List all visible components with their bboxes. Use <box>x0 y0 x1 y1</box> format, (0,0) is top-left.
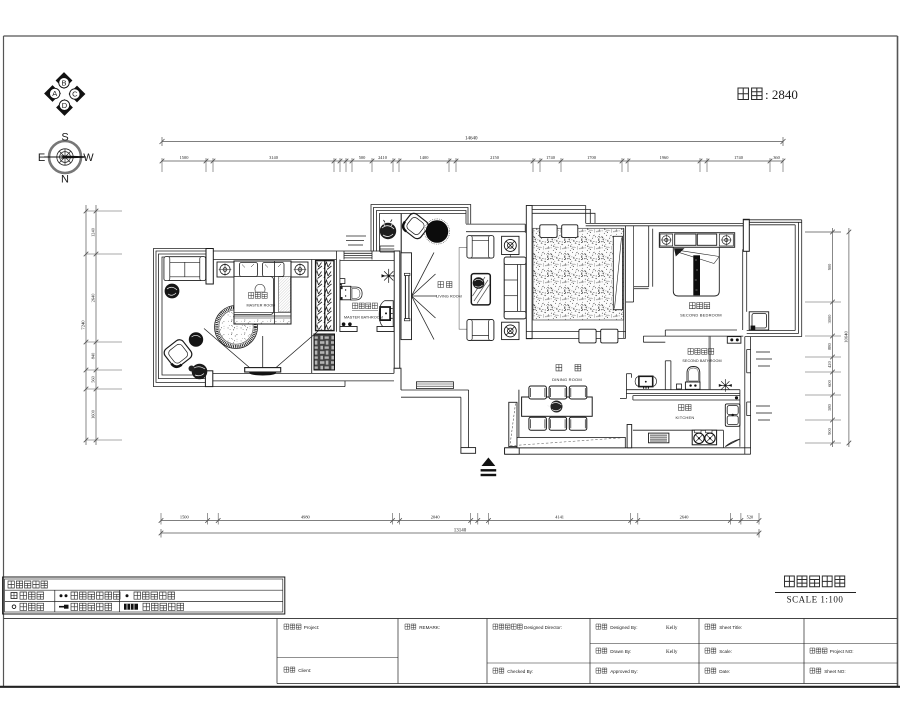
svg-text:1740: 1740 <box>734 155 744 160</box>
svg-text:4980: 4980 <box>301 514 311 519</box>
svg-text:560: 560 <box>91 375 96 382</box>
svg-text:1240: 1240 <box>91 227 96 237</box>
svg-text:3000: 3000 <box>827 314 832 324</box>
svg-text:900: 900 <box>827 263 832 270</box>
svg-text:Checked By:: Checked By: <box>507 669 533 674</box>
svg-text:SECOND BEDROOM: SECOND BEDROOM <box>680 313 722 318</box>
svg-text:1500: 1500 <box>180 155 190 160</box>
svg-text:B: B <box>61 78 66 87</box>
svg-text:2410: 2410 <box>378 155 388 160</box>
svg-text:360: 360 <box>773 155 780 160</box>
svg-text:A: A <box>52 89 57 98</box>
svg-text:Kelly: Kelly <box>666 625 678 631</box>
svg-text:SCALE 1:100: SCALE 1:100 <box>787 595 844 605</box>
svg-text:2040: 2040 <box>431 514 441 519</box>
svg-text:S: S <box>61 132 68 144</box>
svg-text:REMARK:: REMARK: <box>419 625 440 630</box>
svg-text:2150: 2150 <box>490 155 500 160</box>
svg-text:880: 880 <box>827 342 832 349</box>
svg-text:13140: 13140 <box>454 529 467 534</box>
svg-text:W: W <box>83 152 94 164</box>
svg-text:Date:: Date: <box>719 669 730 674</box>
svg-text:1700: 1700 <box>587 155 597 160</box>
svg-text:10640: 10640 <box>843 331 848 343</box>
svg-text:520: 520 <box>747 514 754 519</box>
svg-text:14640: 14640 <box>465 137 478 142</box>
svg-text:Designed Director:: Designed Director: <box>524 625 562 630</box>
svg-text:DINING ROOM: DINING ROOM <box>552 377 582 382</box>
svg-text:Designed By:: Designed By: <box>610 625 637 630</box>
svg-text:420: 420 <box>827 360 832 367</box>
svg-text:2640: 2640 <box>680 514 690 519</box>
svg-text:7240: 7240 <box>81 320 86 330</box>
svg-text:1500: 1500 <box>180 514 190 519</box>
svg-text:MASTER ROOM: MASTER ROOM <box>247 304 276 308</box>
svg-text:MASTER BATHROOM: MASTER BATHROOM <box>344 316 383 320</box>
svg-text:Drawn By:: Drawn By: <box>610 649 631 654</box>
svg-text:580: 580 <box>827 403 832 410</box>
svg-text:D: D <box>62 101 68 110</box>
svg-text:Approved By:: Approved By: <box>610 669 638 674</box>
svg-text:Project NO:: Project NO: <box>830 649 854 654</box>
svg-text:SECOND BATHROOM: SECOND BATHROOM <box>682 359 721 363</box>
svg-text:2640: 2640 <box>91 293 96 303</box>
svg-text:3140: 3140 <box>269 155 279 160</box>
svg-text:900: 900 <box>827 427 832 434</box>
svg-text:Scale:: Scale: <box>719 649 732 654</box>
svg-text:1740: 1740 <box>546 155 556 160</box>
svg-text:1600: 1600 <box>91 409 96 419</box>
svg-text:: 2840: : 2840 <box>765 87 798 102</box>
svg-text:Kelly: Kelly <box>666 649 678 655</box>
svg-text:Sheet NO:: Sheet NO: <box>824 669 845 674</box>
svg-text:LIVING ROOM: LIVING ROOM <box>436 295 462 299</box>
svg-text:4141: 4141 <box>555 514 564 519</box>
svg-text:500: 500 <box>359 155 366 160</box>
svg-text:1960: 1960 <box>660 155 670 160</box>
svg-text:Sheet Title:: Sheet Title: <box>719 625 742 630</box>
svg-text:840: 840 <box>91 352 96 359</box>
svg-text:E: E <box>38 152 45 164</box>
svg-text:C: C <box>72 90 78 99</box>
svg-text:Client:: Client: <box>298 668 311 673</box>
svg-text:Project:: Project: <box>304 625 320 630</box>
svg-text:N: N <box>61 174 69 186</box>
svg-text:KITCHEN: KITCHEN <box>676 415 695 420</box>
svg-text:600: 600 <box>827 379 832 386</box>
svg-text:1400: 1400 <box>420 155 430 160</box>
